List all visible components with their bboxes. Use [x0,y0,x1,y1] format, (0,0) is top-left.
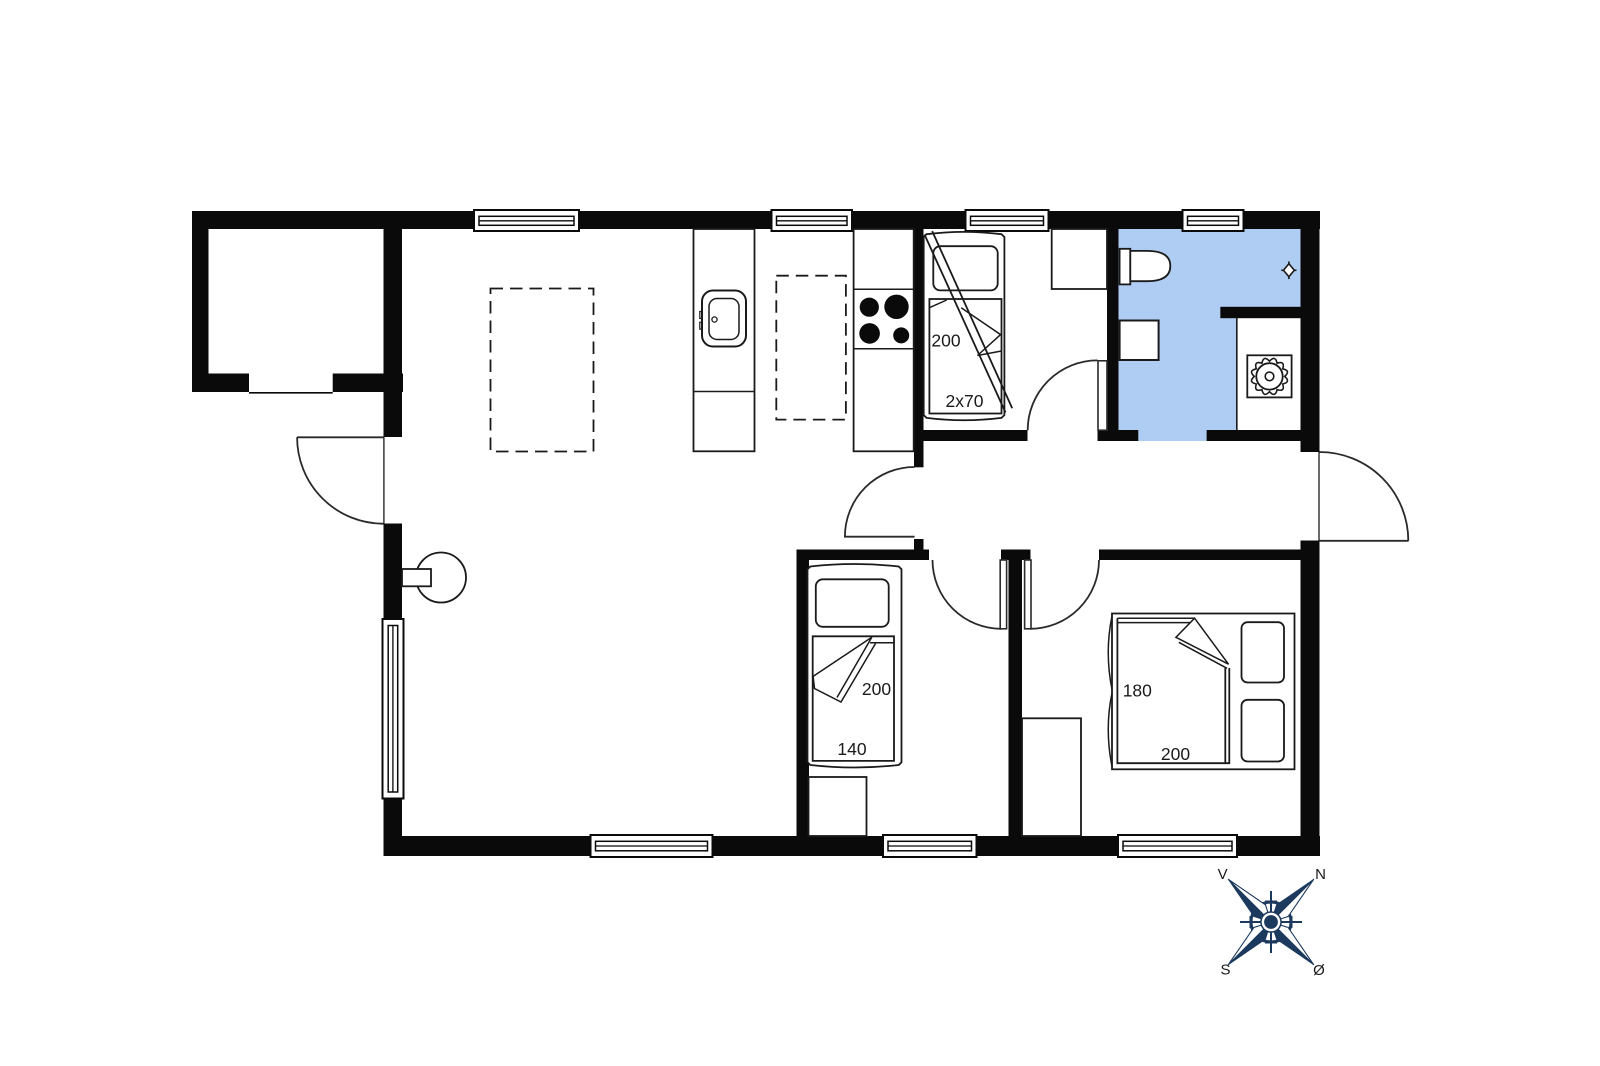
svg-text:N: N [1315,866,1326,883]
svg-text:V: V [1218,866,1228,883]
svg-text:200: 200 [862,679,891,699]
svg-text:200: 200 [1161,744,1190,764]
svg-text:S: S [1220,962,1230,979]
svg-text:2x70: 2x70 [946,391,984,411]
svg-text:180: 180 [1123,681,1152,701]
svg-text:140: 140 [837,739,866,759]
svg-text:Ø: Ø [1313,962,1325,979]
svg-text:200: 200 [931,331,960,351]
